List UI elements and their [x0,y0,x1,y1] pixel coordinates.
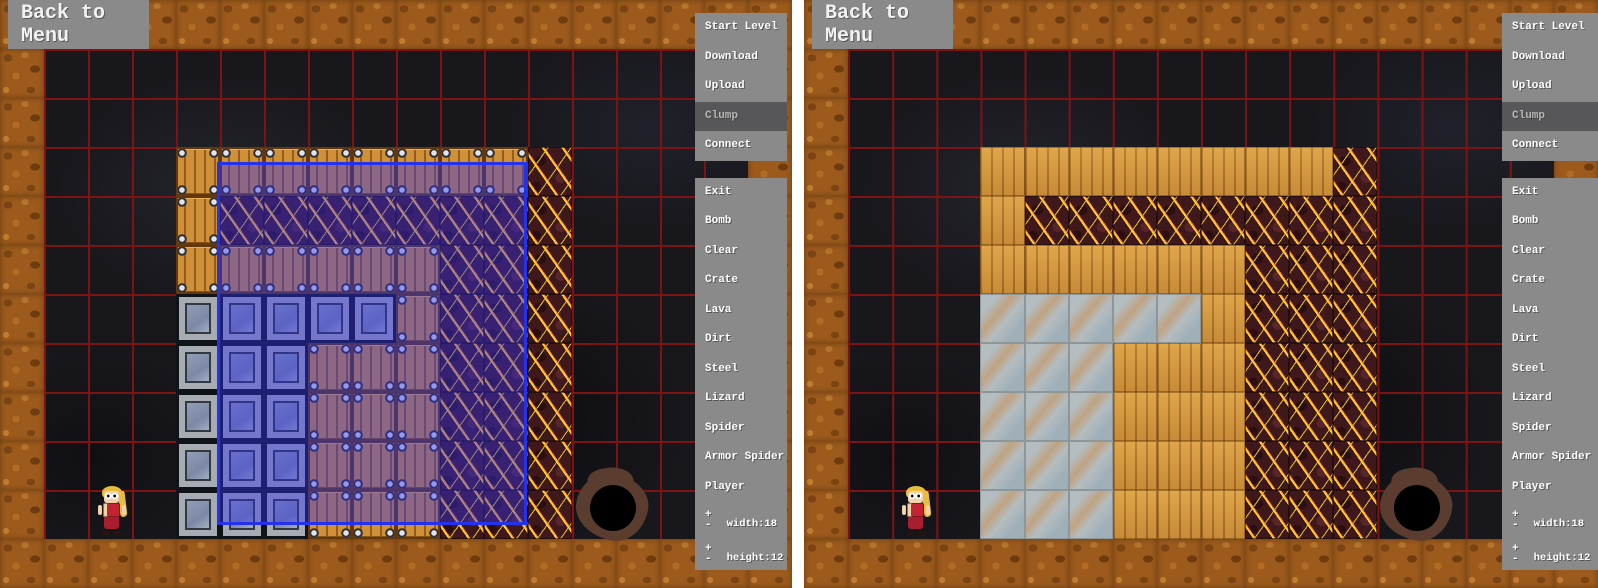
tile-empty[interactable] [936,245,980,294]
tile-empty[interactable] [1422,343,1466,392]
tile-dirt[interactable] [1113,0,1157,49]
tile-empty[interactable] [1245,49,1289,98]
tile-empty[interactable] [220,98,264,147]
tile-lava[interactable] [1069,196,1113,245]
tile-empty[interactable] [1245,98,1289,147]
tile-wood[interactable] [1201,441,1245,490]
tile-dirt[interactable] [616,0,660,49]
tile-lava[interactable] [1245,343,1289,392]
tile-lava[interactable] [1289,196,1333,245]
tile-lava[interactable] [528,294,572,343]
sidebar-item-steel[interactable]: Steel [1502,355,1598,385]
tile-dirt[interactable] [848,539,892,588]
exit-hole[interactable] [1380,474,1452,540]
sidebar-item-start-level[interactable]: Start Level [695,13,787,43]
tile-dirt[interactable] [176,0,220,49]
tile-empty[interactable] [848,245,892,294]
sidebar-item-download[interactable]: Download [1502,43,1598,73]
tile-empty[interactable] [1069,49,1113,98]
tile-empty[interactable] [88,98,132,147]
tile-empty[interactable] [616,392,660,441]
tile-dirt[interactable] [1377,539,1421,588]
tile-empty[interactable] [44,490,88,539]
tile-lava[interactable] [1333,392,1377,441]
tile-dirt[interactable] [0,539,44,588]
tile-empty[interactable] [1069,98,1113,147]
tile-empty[interactable] [616,245,660,294]
tile-empty[interactable] [308,49,352,98]
tile-wood[interactable] [1289,147,1333,196]
tile-lava[interactable] [1201,196,1245,245]
tile-empty[interactable] [484,98,528,147]
tile-empty[interactable] [132,98,176,147]
tile-empty[interactable] [616,294,660,343]
sidebar-item-armor-spider[interactable]: Armor Spider [1502,443,1598,473]
tile-lava[interactable] [1333,147,1377,196]
tile-wood[interactable] [1113,343,1157,392]
tile-empty[interactable] [1377,392,1421,441]
tile-lava[interactable] [1333,245,1377,294]
sidebar-item-player[interactable]: Player [695,473,787,503]
tile-empty[interactable] [176,49,220,98]
tile-wood[interactable] [1201,294,1245,343]
tile-wood[interactable] [1069,245,1113,294]
sidebar-item-lizard[interactable]: Lizard [695,384,787,414]
tile-wood[interactable] [980,245,1024,294]
tile-dirt[interactable] [1245,0,1289,49]
tile-empty[interactable] [1377,49,1421,98]
sidebar-item-upload[interactable]: Upload [695,72,787,102]
player-sprite[interactable] [901,486,931,538]
height-decrement-button[interactable]: - [1512,554,1519,564]
tile-dirt[interactable] [396,539,440,588]
tile-wood[interactable] [1025,147,1069,196]
tile-empty[interactable] [308,98,352,147]
tile-empty[interactable] [88,147,132,196]
tile-lava[interactable] [1157,196,1201,245]
sidebar-item-crate[interactable]: Crate [695,266,787,296]
tile-wood[interactable] [1201,343,1245,392]
tile-steel[interactable] [176,441,220,490]
tile-lava[interactable] [528,147,572,196]
tile-glass[interactable] [980,441,1024,490]
tile-empty[interactable] [484,49,528,98]
tile-dirt[interactable] [396,0,440,49]
tile-dirt[interactable] [1289,539,1333,588]
tile-lava[interactable] [1333,196,1377,245]
tile-empty[interactable] [936,98,980,147]
tile-lava[interactable] [1289,294,1333,343]
tile-dirt[interactable] [1069,539,1113,588]
back-to-menu-button[interactable]: Back to Menu [812,0,953,49]
tile-empty[interactable] [572,147,616,196]
tile-empty[interactable] [264,98,308,147]
tile-empty[interactable] [848,343,892,392]
tile-dirt[interactable] [0,196,44,245]
tile-dirt[interactable] [616,539,660,588]
tile-glass[interactable] [1113,294,1157,343]
tile-wood[interactable] [1113,245,1157,294]
tile-dirt[interactable] [1201,0,1245,49]
tile-dirt[interactable] [0,49,44,98]
tile-steel[interactable] [176,392,220,441]
sidebar-item-exit[interactable]: Exit [695,178,787,208]
tile-empty[interactable] [1422,147,1466,196]
tile-wood[interactable] [1157,392,1201,441]
sidebar-item-steel[interactable]: Steel [695,355,787,385]
tile-dirt[interactable] [892,539,936,588]
tile-wood[interactable] [1113,441,1157,490]
tile-empty[interactable] [936,392,980,441]
tile-empty[interactable] [88,441,132,490]
tile-lava[interactable] [1245,441,1289,490]
tile-lava[interactable] [1113,196,1157,245]
tile-empty[interactable] [44,343,88,392]
tile-dirt[interactable] [980,0,1024,49]
tile-lava[interactable] [528,343,572,392]
tile-glass[interactable] [1157,294,1201,343]
tile-empty[interactable] [132,441,176,490]
tile-empty[interactable] [1377,294,1421,343]
tile-dirt[interactable] [176,539,220,588]
tile-empty[interactable] [892,294,936,343]
tile-dirt[interactable] [1025,539,1069,588]
player-sprite[interactable] [97,486,127,538]
tile-dirt[interactable] [804,98,848,147]
sidebar-item-connect[interactable]: Connect [695,131,787,161]
tile-dirt[interactable] [0,441,44,490]
tile-glass[interactable] [1069,392,1113,441]
tile-empty[interactable] [1025,98,1069,147]
tile-empty[interactable] [892,441,936,490]
tile-dirt[interactable] [0,98,44,147]
tile-empty[interactable] [44,245,88,294]
tile-dirt[interactable] [132,539,176,588]
tile-wood[interactable] [1157,343,1201,392]
tile-lava[interactable] [1289,392,1333,441]
tile-dirt[interactable] [308,539,352,588]
tile-empty[interactable] [1113,98,1157,147]
tile-lava[interactable] [528,196,572,245]
tile-empty[interactable] [1113,49,1157,98]
sidebar-item-crate[interactable]: Crate [1502,266,1598,296]
tile-dirt[interactable] [1069,0,1113,49]
tile-empty[interactable] [132,392,176,441]
tile-empty[interactable] [132,294,176,343]
tile-empty[interactable] [892,147,936,196]
tile-dirt[interactable] [804,49,848,98]
tile-wood[interactable] [1201,245,1245,294]
tile-empty[interactable] [616,343,660,392]
tile-dirt[interactable] [0,392,44,441]
tile-empty[interactable] [980,98,1024,147]
height-decrement-button[interactable]: - [705,554,712,564]
tile-crate[interactable] [176,147,220,196]
tile-empty[interactable] [936,147,980,196]
tile-dirt[interactable] [220,0,264,49]
tile-lava[interactable] [528,490,572,539]
tile-lava[interactable] [1289,441,1333,490]
tile-dirt[interactable] [0,294,44,343]
tile-empty[interactable] [1333,98,1377,147]
sidebar-item-bomb[interactable]: Bomb [695,207,787,237]
tile-dirt[interactable] [1113,539,1157,588]
tile-empty[interactable] [1422,294,1466,343]
tile-empty[interactable] [616,98,660,147]
tile-empty[interactable] [572,196,616,245]
tile-empty[interactable] [1201,49,1245,98]
tile-dirt[interactable] [440,539,484,588]
tile-empty[interactable] [1422,245,1466,294]
tile-empty[interactable] [88,245,132,294]
sidebar-item-clump[interactable]: Clump [1502,102,1598,132]
tile-dirt[interactable] [0,147,44,196]
tile-dirt[interactable] [528,0,572,49]
tile-empty[interactable] [132,245,176,294]
tile-empty[interactable] [88,343,132,392]
tile-empty[interactable] [264,49,308,98]
sidebar-item-exit[interactable]: Exit [1502,178,1598,208]
tile-glass[interactable] [980,392,1024,441]
tile-empty[interactable] [892,392,936,441]
tile-dirt[interactable] [308,0,352,49]
sidebar-item-dirt[interactable]: Dirt [695,325,787,355]
tile-dirt[interactable] [484,0,528,49]
tile-empty[interactable] [848,98,892,147]
tile-empty[interactable] [892,196,936,245]
tile-empty[interactable] [44,147,88,196]
tile-empty[interactable] [132,490,176,539]
tile-wood[interactable] [1157,441,1201,490]
tile-empty[interactable] [848,392,892,441]
tile-glass[interactable] [980,490,1024,539]
tile-glass[interactable] [1025,343,1069,392]
tile-dirt[interactable] [572,539,616,588]
tile-lava[interactable] [1289,245,1333,294]
tile-empty[interactable] [848,147,892,196]
exit-hole[interactable] [576,474,648,540]
sidebar-item-bomb[interactable]: Bomb [1502,207,1598,237]
tile-steel[interactable] [176,490,220,539]
tile-dirt[interactable] [352,539,396,588]
tile-dirt[interactable] [572,0,616,49]
tile-empty[interactable] [572,245,616,294]
tile-dirt[interactable] [1157,539,1201,588]
tile-wood[interactable] [1025,245,1069,294]
tile-empty[interactable] [44,196,88,245]
tile-glass[interactable] [1025,294,1069,343]
tile-empty[interactable] [936,294,980,343]
sidebar-item-armor-spider[interactable]: Armor Spider [695,443,787,473]
tile-empty[interactable] [88,49,132,98]
tile-empty[interactable] [1025,49,1069,98]
tile-empty[interactable] [44,294,88,343]
tile-wood[interactable] [1157,147,1201,196]
tile-glass[interactable] [980,294,1024,343]
tile-wood[interactable] [1113,392,1157,441]
tile-empty[interactable] [1377,147,1421,196]
tile-glass[interactable] [1069,294,1113,343]
tile-empty[interactable] [396,49,440,98]
tile-empty[interactable] [936,196,980,245]
tile-empty[interactable] [1157,49,1201,98]
tile-dirt[interactable] [88,539,132,588]
tile-empty[interactable] [572,343,616,392]
tile-empty[interactable] [88,392,132,441]
tile-dirt[interactable] [1422,0,1466,49]
tile-lava[interactable] [528,245,572,294]
tile-steel[interactable] [176,294,220,343]
tile-dirt[interactable] [804,147,848,196]
tile-lava[interactable] [1333,441,1377,490]
tile-empty[interactable] [352,98,396,147]
tile-lava[interactable] [1245,294,1289,343]
tile-empty[interactable] [1157,98,1201,147]
tile-glass[interactable] [1025,441,1069,490]
tile-empty[interactable] [132,147,176,196]
tile-wood[interactable] [980,196,1024,245]
tile-empty[interactable] [892,98,936,147]
tile-empty[interactable] [848,490,892,539]
tile-lava[interactable] [1333,490,1377,539]
tile-empty[interactable] [892,245,936,294]
tile-glass[interactable] [1069,343,1113,392]
tile-empty[interactable] [980,49,1024,98]
tile-empty[interactable] [936,343,980,392]
tile-lava[interactable] [1245,196,1289,245]
tile-dirt[interactable] [804,245,848,294]
back-to-menu-button[interactable]: Back to Menu [8,0,149,49]
tile-steel[interactable] [176,343,220,392]
tile-empty[interactable] [936,490,980,539]
sidebar-item-upload[interactable]: Upload [1502,72,1598,102]
tile-empty[interactable] [572,392,616,441]
width-decrement-button[interactable]: - [705,520,712,530]
tile-empty[interactable] [1333,49,1377,98]
tile-empty[interactable] [1422,392,1466,441]
tile-empty[interactable] [1289,98,1333,147]
tile-lava[interactable] [1333,343,1377,392]
tile-dirt[interactable] [1333,539,1377,588]
sidebar-item-spider[interactable]: Spider [1502,414,1598,444]
tile-empty[interactable] [848,294,892,343]
tile-dirt[interactable] [1157,0,1201,49]
tile-wood[interactable] [1157,245,1201,294]
tile-empty[interactable] [936,441,980,490]
sidebar-item-lizard[interactable]: Lizard [1502,384,1598,414]
tile-dirt[interactable] [484,539,528,588]
width-decrement-button[interactable]: - [1512,520,1519,530]
sidebar-item-lava[interactable]: Lava [695,296,787,326]
tile-empty[interactable] [572,294,616,343]
tile-empty[interactable] [440,98,484,147]
sidebar-item-clear[interactable]: Clear [1502,237,1598,267]
tile-empty[interactable] [936,49,980,98]
tile-dirt[interactable] [220,539,264,588]
tile-empty[interactable] [352,49,396,98]
tile-dirt[interactable] [352,0,396,49]
tile-dirt[interactable] [1201,539,1245,588]
tile-lava[interactable] [1289,343,1333,392]
tile-dirt[interactable] [804,539,848,588]
tile-dirt[interactable] [264,0,308,49]
tile-dirt[interactable] [264,539,308,588]
tile-empty[interactable] [848,196,892,245]
tile-dirt[interactable] [804,392,848,441]
tile-dirt[interactable] [44,539,88,588]
sidebar-item-player[interactable]: Player [1502,473,1598,503]
tile-empty[interactable] [396,98,440,147]
tile-wood[interactable] [1201,147,1245,196]
tile-wood[interactable] [1157,490,1201,539]
tile-empty[interactable] [1201,98,1245,147]
tile-empty[interactable] [176,98,220,147]
tile-empty[interactable] [892,343,936,392]
tile-dirt[interactable] [0,343,44,392]
tile-dirt[interactable] [804,441,848,490]
tile-empty[interactable] [848,49,892,98]
tile-empty[interactable] [1377,196,1421,245]
tile-empty[interactable] [616,147,660,196]
tile-glass[interactable] [980,343,1024,392]
tile-lava[interactable] [528,441,572,490]
sidebar-item-dirt[interactable]: Dirt [1502,325,1598,355]
tile-wood[interactable] [1201,392,1245,441]
tile-dirt[interactable] [980,539,1024,588]
tile-empty[interactable] [1422,98,1466,147]
tile-dirt[interactable] [1377,0,1421,49]
tile-empty[interactable] [44,49,88,98]
tile-dirt[interactable] [804,294,848,343]
tile-wood[interactable] [1113,147,1157,196]
tile-glass[interactable] [1025,490,1069,539]
tile-dirt[interactable] [804,343,848,392]
sidebar-item-clear[interactable]: Clear [695,237,787,267]
tile-empty[interactable] [1377,343,1421,392]
tile-empty[interactable] [616,49,660,98]
sidebar-item-spider[interactable]: Spider [695,414,787,444]
tile-empty[interactable] [132,343,176,392]
sidebar-item-lava[interactable]: Lava [1502,296,1598,326]
tile-empty[interactable] [528,49,572,98]
tile-dirt[interactable] [440,0,484,49]
tile-empty[interactable] [1422,196,1466,245]
tile-empty[interactable] [440,49,484,98]
tile-dirt[interactable] [1025,0,1069,49]
tile-dirt[interactable] [1333,0,1377,49]
tile-empty[interactable] [220,49,264,98]
tile-lava[interactable] [1245,490,1289,539]
tile-wood[interactable] [1245,147,1289,196]
tile-dirt[interactable] [936,539,980,588]
tile-lava[interactable] [528,392,572,441]
tile-empty[interactable] [572,98,616,147]
tile-lava[interactable] [1245,392,1289,441]
tile-empty[interactable] [892,49,936,98]
tile-dirt[interactable] [804,196,848,245]
tile-dirt[interactable] [1245,539,1289,588]
tile-dirt[interactable] [1422,539,1466,588]
tile-glass[interactable] [1069,441,1113,490]
tile-empty[interactable] [132,49,176,98]
tile-empty[interactable] [44,441,88,490]
tile-glass[interactable] [1069,490,1113,539]
tile-lava[interactable] [1245,245,1289,294]
tile-lava[interactable] [1289,490,1333,539]
tile-crate[interactable] [176,196,220,245]
sidebar-item-clump[interactable]: Clump [695,102,787,132]
tile-empty[interactable] [88,294,132,343]
